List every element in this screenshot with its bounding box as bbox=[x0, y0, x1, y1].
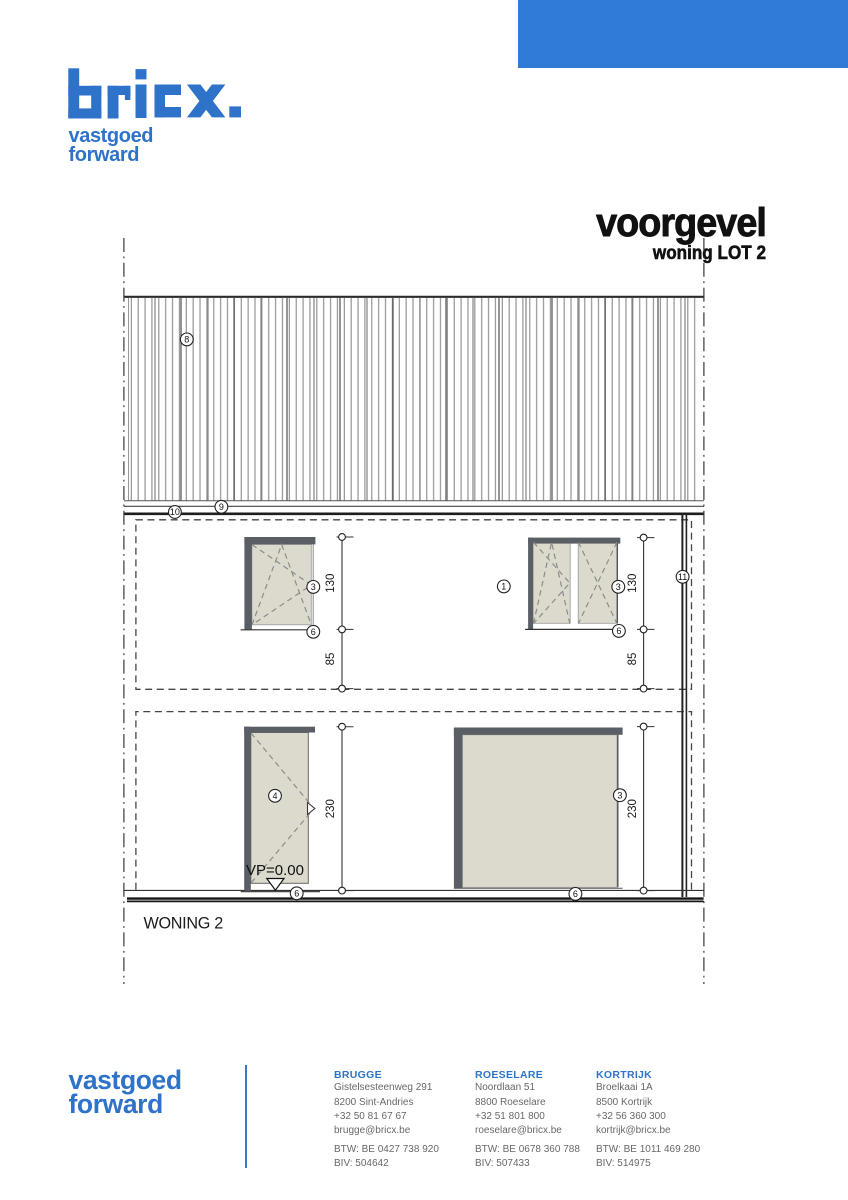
svg-text:3: 3 bbox=[617, 790, 622, 800]
svg-text:3: 3 bbox=[311, 582, 316, 592]
svg-text:6: 6 bbox=[616, 626, 621, 636]
svg-text:11: 11 bbox=[678, 572, 687, 582]
svg-text:130: 130 bbox=[325, 574, 337, 593]
svg-text:85: 85 bbox=[325, 653, 337, 666]
svg-text:8: 8 bbox=[184, 335, 189, 345]
svg-text:VP=0.00: VP=0.00 bbox=[246, 862, 304, 879]
svg-text:10: 10 bbox=[170, 507, 180, 517]
svg-text:130: 130 bbox=[627, 574, 639, 593]
svg-text:1: 1 bbox=[501, 582, 506, 592]
svg-text:6: 6 bbox=[311, 627, 316, 637]
svg-text:3: 3 bbox=[616, 582, 621, 592]
svg-text:230: 230 bbox=[325, 799, 337, 818]
svg-text:4: 4 bbox=[272, 791, 277, 801]
svg-text:6: 6 bbox=[573, 889, 578, 899]
svg-text:85: 85 bbox=[627, 653, 639, 666]
svg-text:230: 230 bbox=[627, 799, 639, 818]
svg-text:9: 9 bbox=[219, 502, 224, 512]
svg-text:6: 6 bbox=[294, 889, 299, 899]
svg-text:WONING 2: WONING 2 bbox=[144, 915, 224, 933]
